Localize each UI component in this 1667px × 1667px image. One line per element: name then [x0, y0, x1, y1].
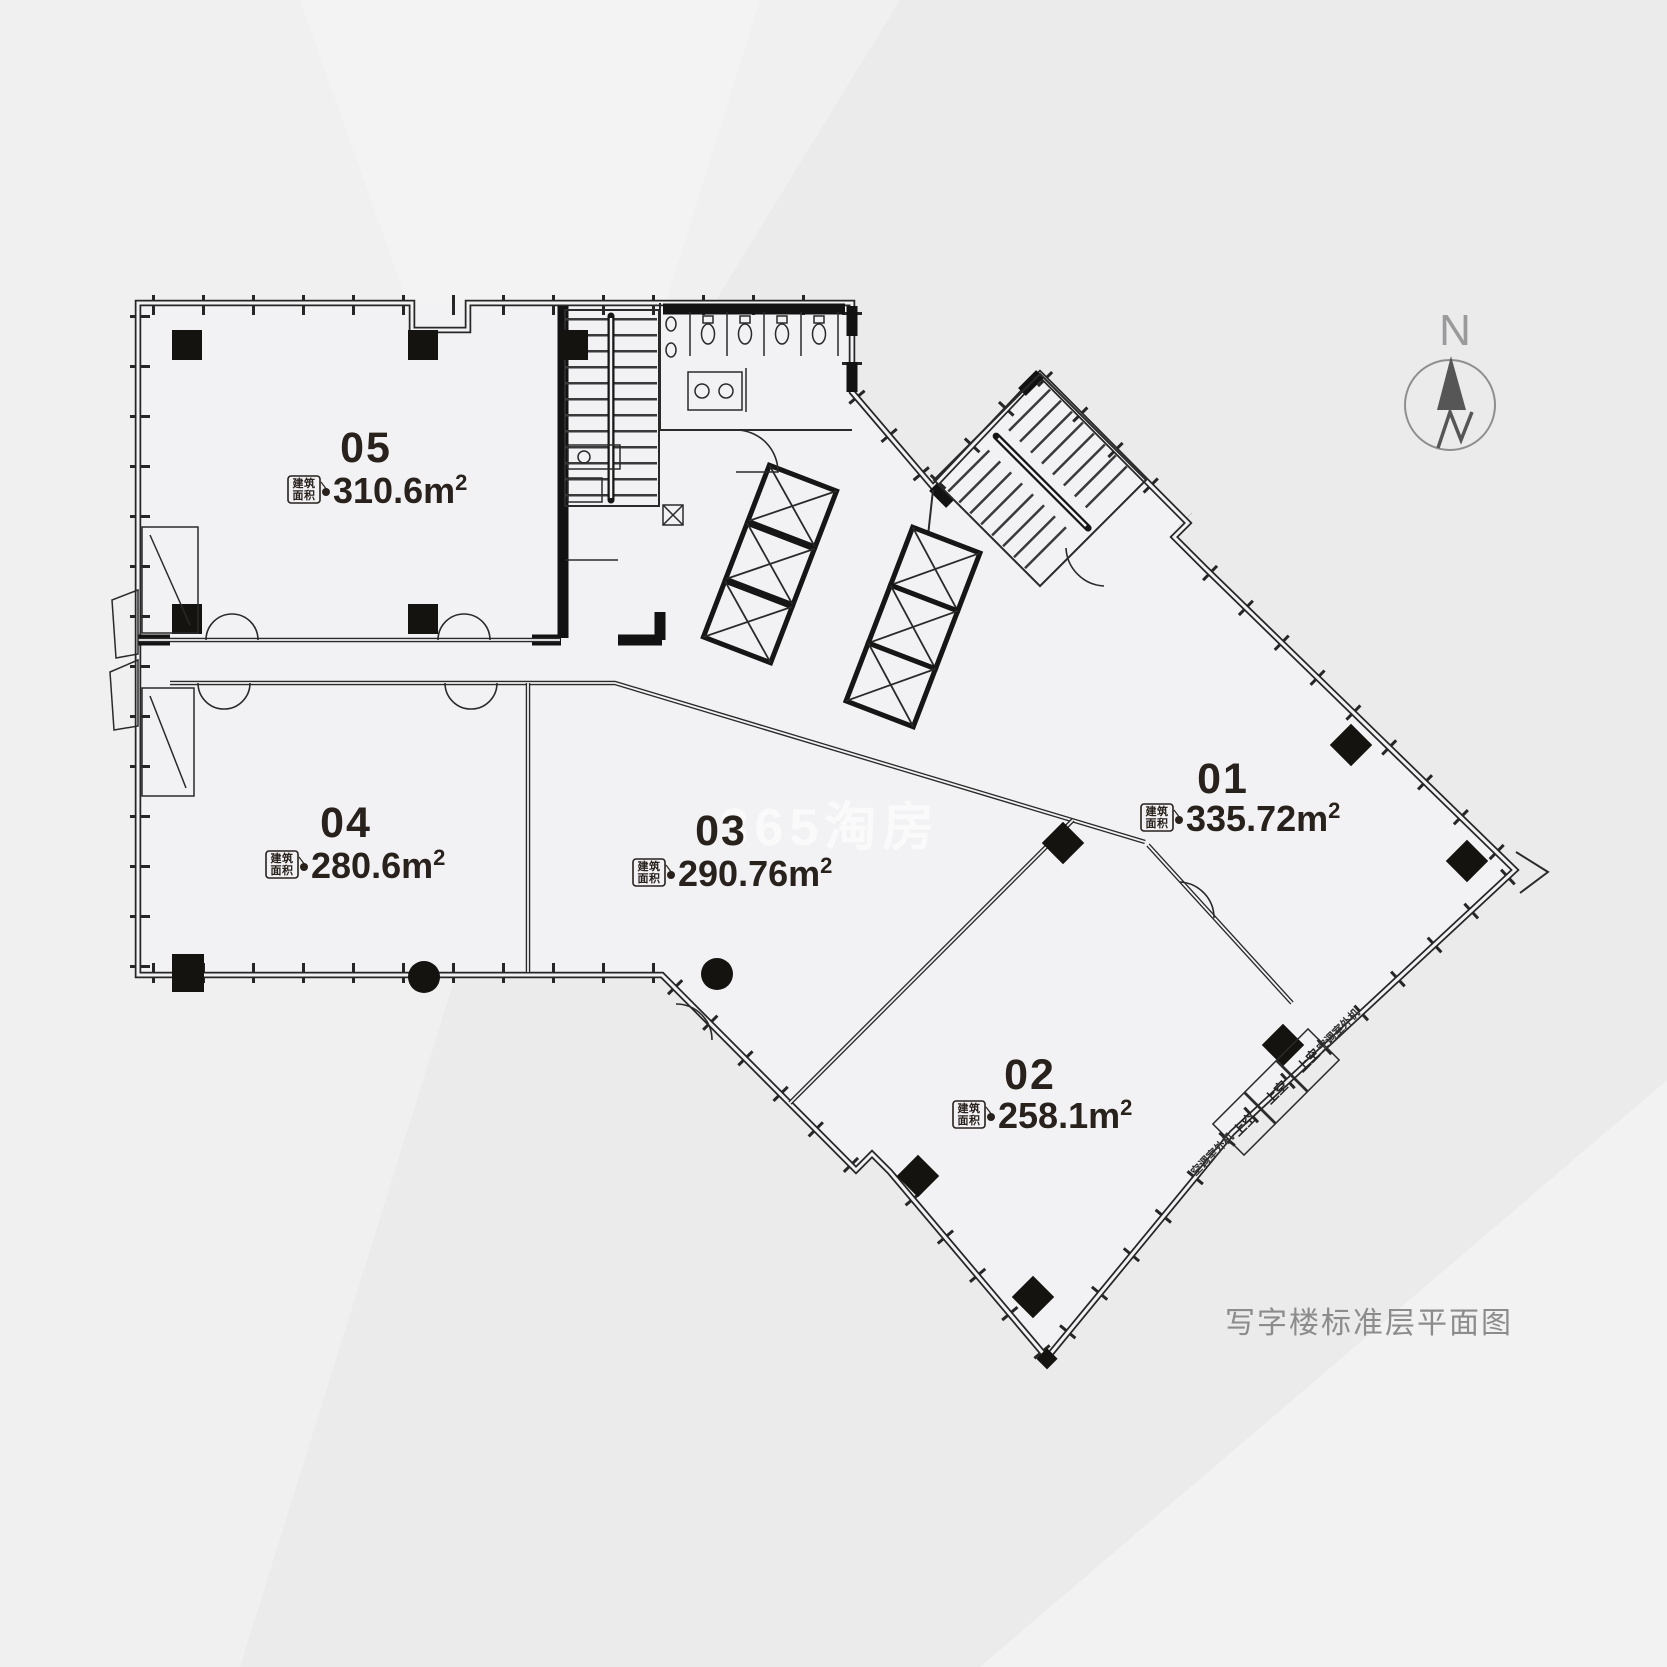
area-box-line1: 建筑	[293, 476, 316, 490]
unit-area: 280.6m2	[311, 845, 445, 886]
watermark: 365淘房	[720, 799, 941, 857]
compass-north-label: N	[1439, 306, 1471, 355]
area-box-line2: 面积	[271, 863, 294, 877]
unit-number: 02	[1004, 1051, 1056, 1099]
unit-number: 05	[340, 424, 392, 472]
unit-number: 03	[695, 807, 747, 855]
unit-area: 335.72m2	[1186, 798, 1340, 839]
area-box-line1: 建筑	[1146, 804, 1169, 818]
area-box-line2: 面积	[1146, 816, 1169, 830]
unit-area: 290.76m2	[678, 853, 832, 894]
unit-number: 04	[320, 799, 372, 847]
floorplan-page: 上空 上空 上空 空调室外机 空调室外机 365淘房 05 建筑 面积 310.…	[0, 0, 1667, 1667]
unit-number: 01	[1197, 755, 1249, 803]
floorplan-svg: 上空 上空 上空 空调室外机 空调室外机 365淘房 05 建筑 面积 310.…	[0, 0, 1667, 1667]
area-box-line2: 面积	[958, 1113, 981, 1127]
area-box-line1: 建筑	[958, 1101, 981, 1115]
area-box-line2: 面积	[293, 488, 316, 502]
area-box-line1: 建筑	[271, 851, 294, 865]
area-box-line1: 建筑	[638, 859, 661, 873]
unit-area: 258.1m2	[998, 1095, 1132, 1136]
area-box-line2: 面积	[638, 871, 661, 885]
unit-area: 310.6m2	[333, 470, 467, 511]
caption: 写字楼标准层平面图	[1225, 1307, 1513, 1340]
